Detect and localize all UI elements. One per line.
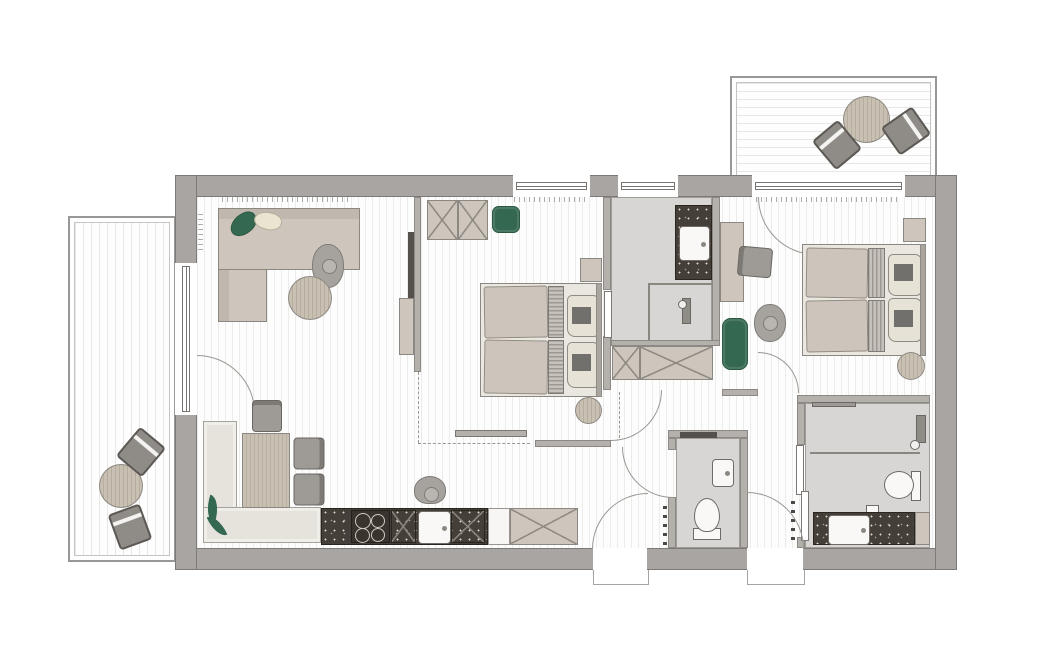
window-bedroom-1 [513, 175, 590, 197]
wall-hallway-south-bed1 [535, 440, 611, 447]
blanket-fold [548, 340, 564, 394]
toilet-bowl [694, 498, 720, 532]
bath1-shower-head [678, 300, 687, 309]
wc-shelf [680, 432, 717, 438]
door-leaf-bedroom1-dashed [619, 392, 620, 438]
wall-wc-left-lower [668, 497, 676, 548]
bedroom1-wardrobe-right [458, 200, 488, 240]
dining-table [242, 433, 290, 508]
floor-plan [0, 0, 1039, 660]
bath1-washbasin [679, 226, 710, 261]
tv [408, 232, 414, 298]
bedroom1-green-armchair [492, 206, 520, 233]
kitchen-tall-cabinet [510, 508, 578, 545]
toilet-bowl [884, 471, 914, 499]
open-partition-dashed-v [418, 372, 419, 443]
wc-toilet [692, 498, 720, 540]
outer-wall-right [935, 175, 957, 570]
cooktop-burner-2 [371, 514, 385, 528]
mattress [806, 247, 869, 298]
open-partition-dashed-h [418, 443, 530, 444]
wall-bath1-bedroom2 [712, 197, 720, 342]
bedroom1-nightstand [580, 258, 602, 282]
outer-wall-bottom [175, 548, 957, 570]
dining-chair-head [252, 400, 282, 432]
bath2-shower-fixture [916, 415, 926, 443]
radiator-bedroom-1 [514, 197, 586, 202]
wall-living-bedroom1 [414, 197, 421, 372]
kitchen-sink [418, 511, 451, 544]
wall-bath2-left-upper [797, 403, 805, 445]
bath1-shower-glass-h [648, 283, 712, 285]
hallway-wardrobe-small [612, 346, 640, 380]
bath2-shower-head [910, 440, 920, 450]
door-gap-hall [593, 548, 647, 570]
kitchen-counter-white-section [488, 508, 510, 545]
balcony-slider-living [175, 263, 197, 415]
bath2-vanity-side [915, 512, 930, 545]
mattress [484, 339, 549, 394]
headboard [596, 283, 602, 397]
blanket-fold [868, 300, 885, 352]
window-bathroom-1 [618, 175, 678, 197]
blanket-fold [548, 286, 564, 338]
door-gap-entrance [747, 548, 803, 570]
bath1-shower-glass-v [648, 283, 650, 340]
person-bedroom2 [754, 304, 786, 342]
dining-chair-side-1 [294, 438, 325, 470]
bedroom2-green-bench [722, 318, 748, 370]
wc-hand-basin [712, 459, 734, 487]
bath2-toilet [884, 470, 920, 500]
pillow-accent [894, 264, 913, 281]
bedroom1-round-stool [575, 397, 602, 424]
radiator-wc [663, 503, 667, 545]
tv-lowboard [399, 298, 414, 355]
dining-chair-side-2 [294, 474, 325, 506]
bath2-sliding-door-b [801, 491, 809, 541]
bedroom2-nightstand [903, 218, 926, 242]
person-head [763, 316, 778, 331]
pillow [888, 254, 922, 296]
bedroom1-wardrobe-left [427, 200, 458, 240]
entrance-step-right [747, 570, 805, 585]
bedroom1-bed [480, 283, 602, 397]
person-head [424, 487, 439, 502]
cooktop-burner-4 [371, 528, 385, 542]
bath2-washbasin [828, 515, 870, 545]
pillow-accent [572, 307, 591, 324]
hallway-wardrobe-wide [640, 346, 713, 380]
radiator-living [222, 197, 352, 202]
headboard [920, 244, 926, 356]
balcony-slider-bedroom-2 [752, 175, 905, 197]
person-kitchen [414, 476, 446, 504]
bath2-sliding-door-a [796, 445, 804, 495]
pillow [888, 298, 922, 342]
coffee-table [288, 276, 332, 320]
bedroom2-desk-chair [737, 246, 773, 279]
bath2-shower-shelf [812, 402, 856, 407]
wall-bedroom1-bath1-lower [603, 336, 611, 390]
kitchen-cabinet-x-2 [451, 510, 485, 543]
bedroom2-round-stool [897, 352, 925, 380]
person-head [322, 259, 337, 274]
cooktop-burner-3 [355, 528, 370, 543]
bedroom2-bed [802, 244, 926, 356]
entrance-step-left [593, 570, 649, 585]
sliding-partition-panel [455, 430, 527, 437]
pillow-accent [572, 354, 591, 371]
cooktop-burner-1 [355, 513, 371, 529]
pillow-accent [894, 310, 913, 327]
kitchen-cabinet-x-1 [391, 510, 416, 543]
bath1-sliding-door [604, 291, 612, 338]
radiator-left-wall [198, 212, 203, 250]
wall-bedroom2-south [722, 389, 758, 396]
mattress [806, 299, 869, 352]
blanket-fold [868, 248, 885, 298]
wall-bedroom1-bath1-upper [603, 197, 611, 290]
bath2-shower-glass [810, 452, 920, 454]
mattress [484, 285, 549, 338]
